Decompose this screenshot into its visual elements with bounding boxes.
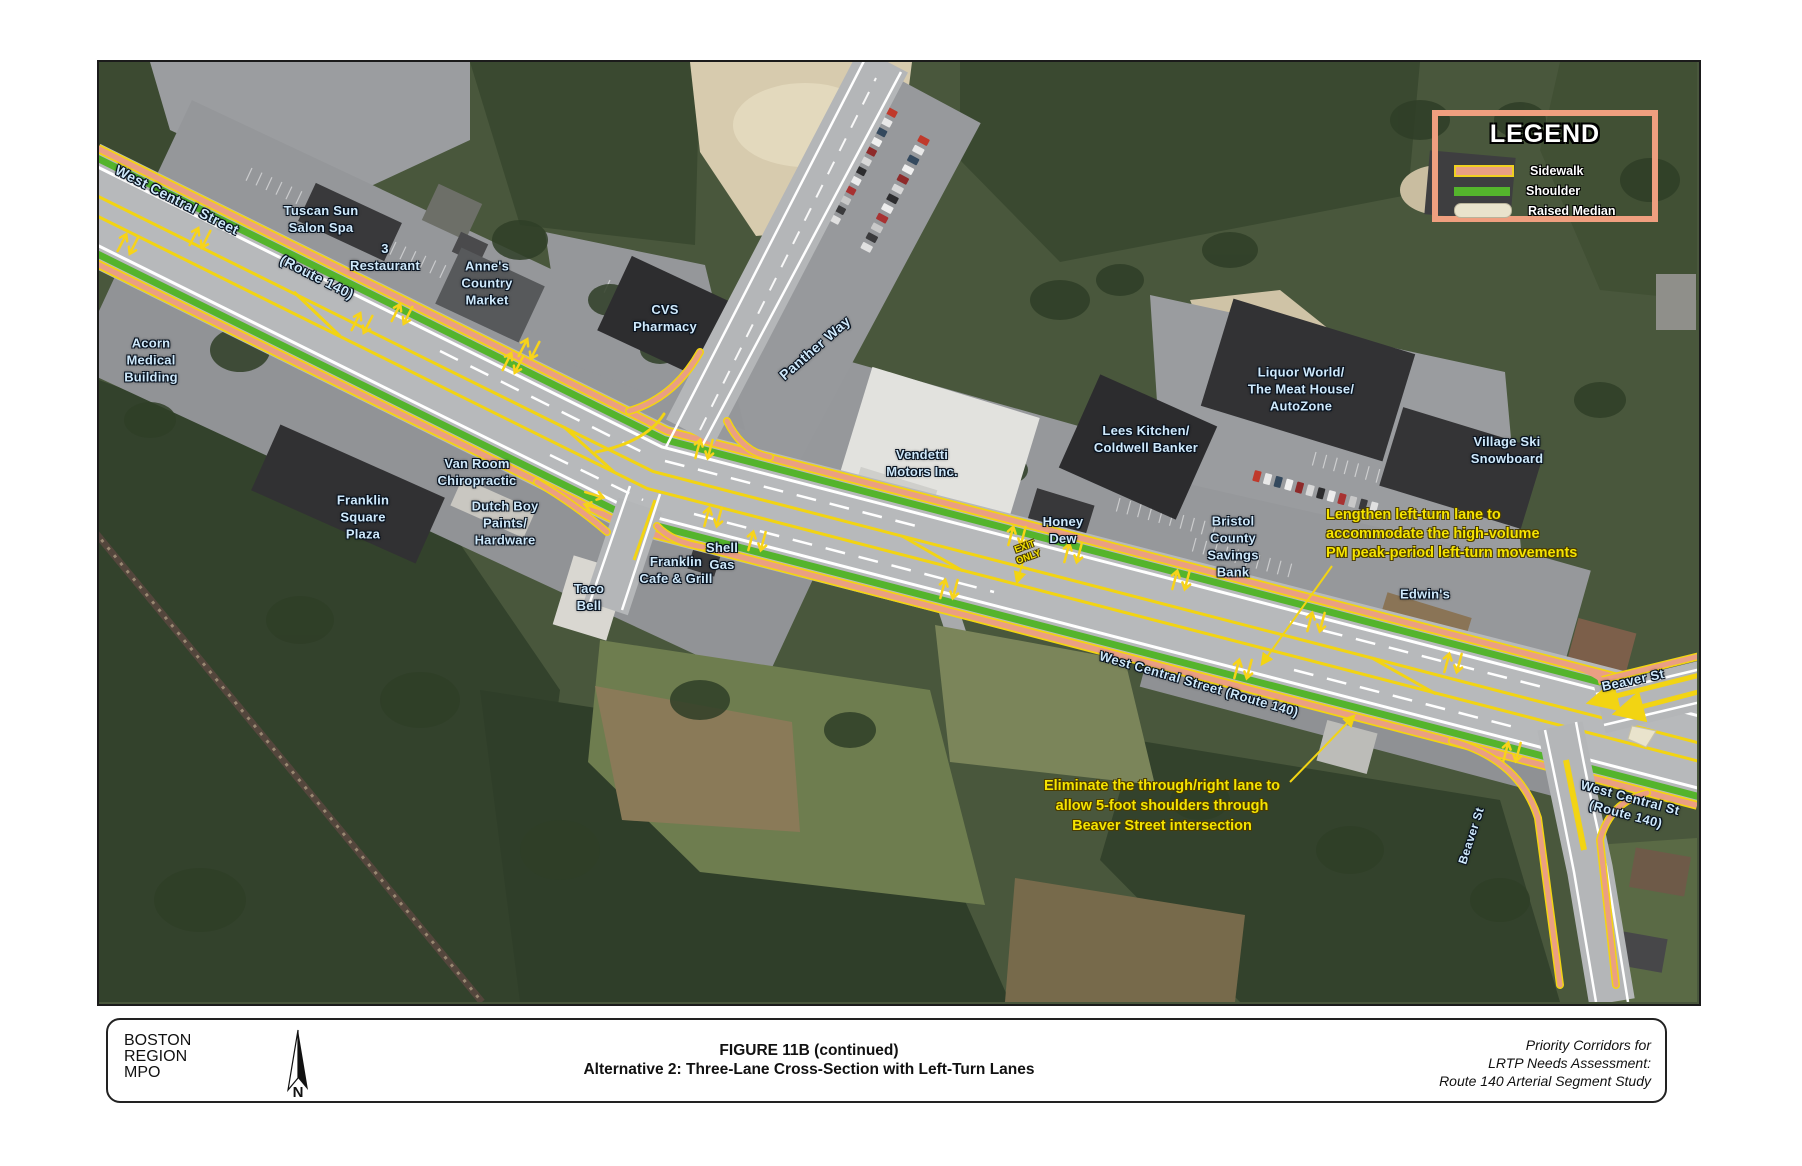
agency-name: BOSTON REGION MPO [124, 1033, 191, 1081]
shoulder-swatch-icon [1454, 187, 1510, 196]
figure-page: West Central Street (Route 140) Panther … [0, 0, 1802, 1166]
legend-item-label: Raised Median [1528, 204, 1616, 218]
project-name: Priority Corridors for LRTP Needs Assess… [1439, 1036, 1651, 1090]
figure-number: FIGURE 11B (continued) [583, 1041, 1034, 1060]
raised-median-swatch-icon [1454, 203, 1512, 218]
footer-bar: BOSTON REGION MPO N FIGURE 11B (continue… [106, 1018, 1667, 1103]
legend-item-raised-median: Raised Median [1454, 203, 1616, 218]
legend: LEGEND Sidewalk Shoulder Raised Median [1432, 110, 1658, 222]
legend-item-sidewalk: Sidewalk [1454, 164, 1584, 178]
legend-item-label: Sidewalk [1530, 164, 1584, 178]
legend-item-label: Shoulder [1526, 184, 1580, 198]
legend-item-shoulder: Shoulder [1454, 184, 1580, 198]
sidewalk-swatch-icon [1454, 165, 1514, 177]
figure-subtitle: Alternative 2: Three-Lane Cross-Section … [583, 1060, 1034, 1079]
legend-title: LEGEND [1438, 120, 1652, 149]
north-arrow-icon: N [280, 1028, 316, 1105]
compass-n-label: N [293, 1084, 304, 1100]
figure-title-block: FIGURE 11B (continued) Alternative 2: Th… [583, 1041, 1034, 1079]
